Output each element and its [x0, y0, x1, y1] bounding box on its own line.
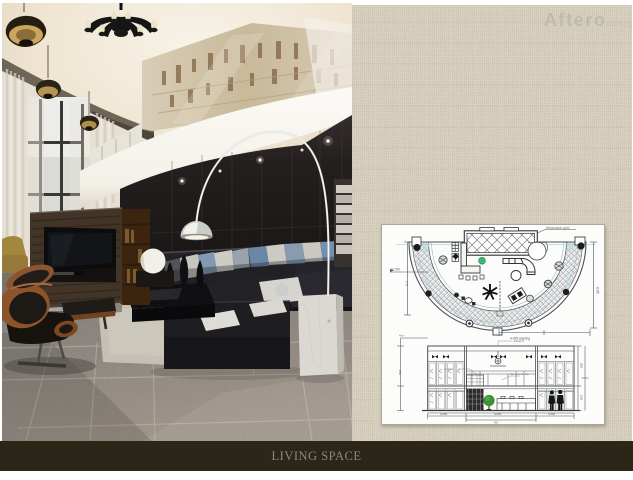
svg-text:250: 250 — [580, 363, 584, 368]
svg-text:bar counter top: bar counter top — [510, 372, 529, 376]
svg-text:7.0: 7.0 — [405, 281, 409, 286]
svg-text:9-000: 9-000 — [494, 412, 502, 416]
svg-text:150: 150 — [580, 395, 584, 400]
svg-text:9-0: 9-0 — [494, 421, 498, 424]
svg-text:ceiling ht: ceiling ht — [513, 339, 524, 343]
svg-text:4 m: 4 m — [399, 334, 405, 338]
svg-text:250: 250 — [398, 370, 402, 375]
svg-text:4-500: 4-500 — [548, 412, 556, 416]
svg-text:counter: counter — [444, 367, 453, 371]
svg-text:2-700: 2-700 — [391, 268, 400, 272]
svg-text:8.85: 8.85 — [596, 287, 600, 294]
svg-text:4-500: 4-500 — [440, 412, 448, 416]
svg-text:dimension grid: dimension grid — [546, 226, 569, 230]
